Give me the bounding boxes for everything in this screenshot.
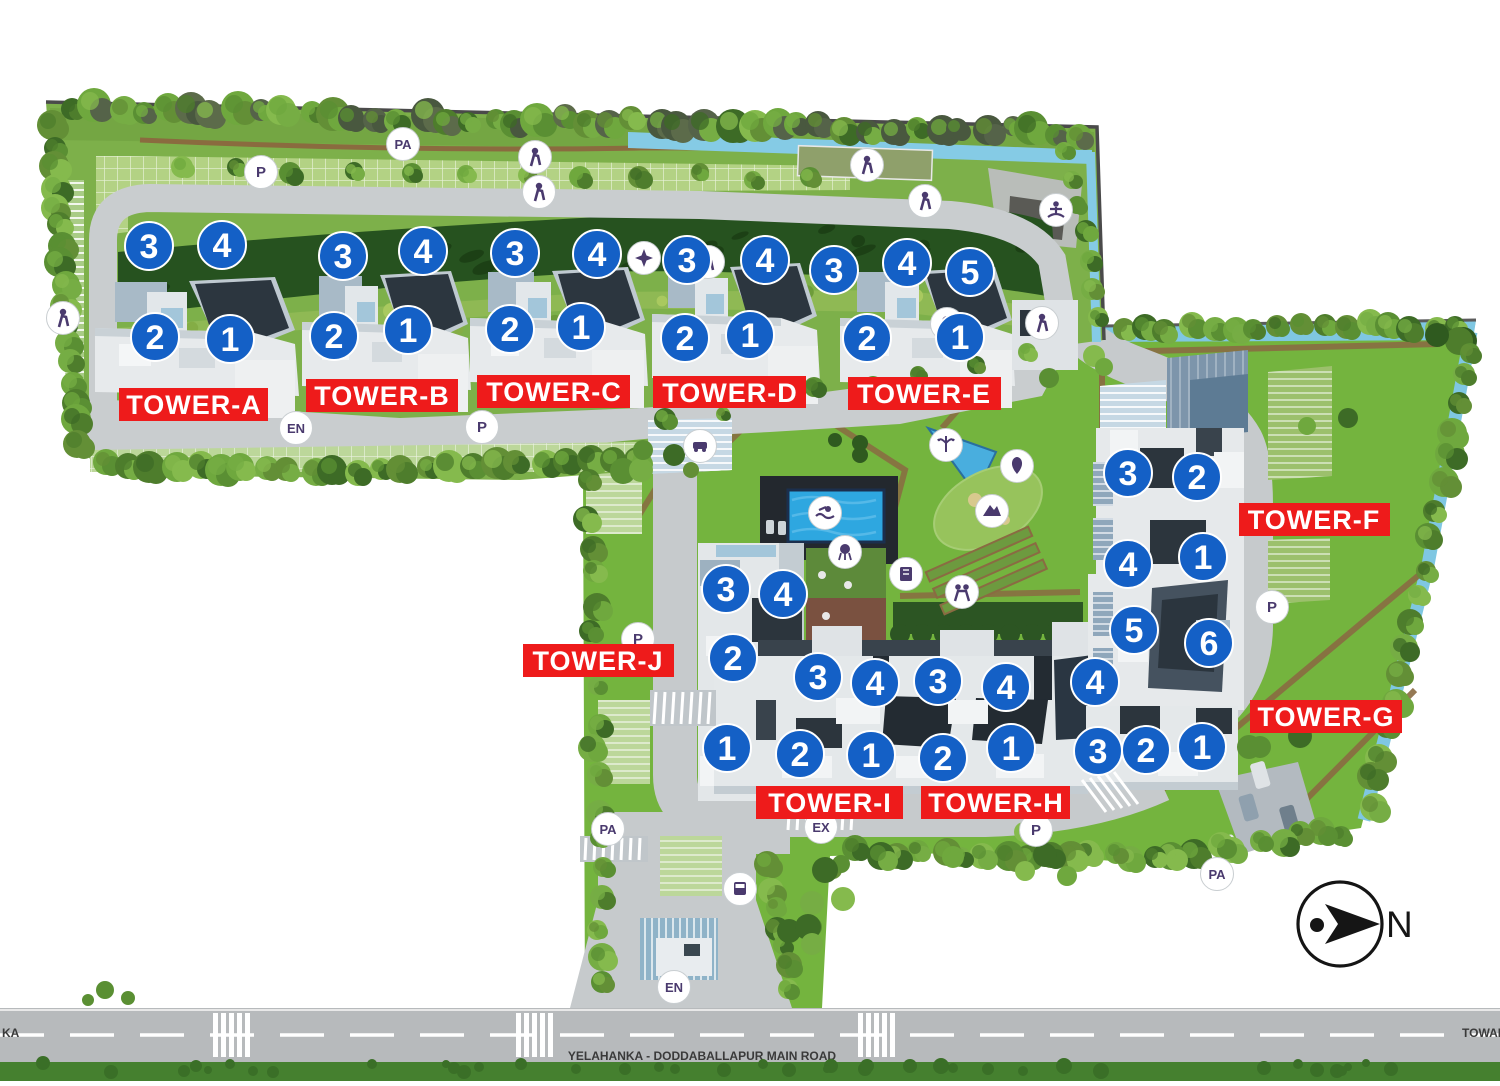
- svg-text:PA: PA: [394, 137, 412, 152]
- svg-text:PA: PA: [1208, 867, 1226, 882]
- svg-text:4: 4: [414, 233, 433, 271]
- svg-text:3: 3: [717, 571, 736, 609]
- svg-text:TOWER-F: TOWER-F: [1248, 505, 1380, 535]
- svg-text:1: 1: [862, 737, 881, 775]
- svg-text:6: 6: [1200, 625, 1219, 663]
- svg-text:2: 2: [325, 318, 344, 356]
- svg-text:3: 3: [929, 663, 948, 701]
- svg-text:TOWER-G: TOWER-G: [1258, 702, 1395, 732]
- svg-text:4: 4: [1119, 546, 1138, 584]
- svg-text:1: 1: [1002, 730, 1021, 768]
- svg-text:TOWER-C: TOWER-C: [486, 377, 622, 407]
- svg-text:TOWER-H: TOWER-H: [928, 788, 1064, 818]
- svg-text:TOWER-J: TOWER-J: [532, 646, 663, 676]
- svg-text:TOWER-I: TOWER-I: [768, 788, 892, 818]
- svg-text:P: P: [477, 419, 487, 436]
- svg-text:TOWER-B: TOWER-B: [314, 381, 450, 411]
- svg-text:EN: EN: [665, 980, 683, 995]
- svg-text:3: 3: [678, 242, 697, 280]
- svg-text:4: 4: [997, 669, 1016, 707]
- svg-text:3: 3: [140, 228, 159, 266]
- svg-text:3: 3: [1089, 733, 1108, 771]
- svg-text:2: 2: [1188, 459, 1207, 497]
- svg-text:2: 2: [146, 319, 165, 357]
- svg-text:1: 1: [572, 309, 591, 347]
- svg-text:1: 1: [221, 321, 240, 359]
- svg-text:4: 4: [898, 245, 917, 283]
- svg-text:4: 4: [756, 242, 775, 280]
- svg-text:2: 2: [724, 640, 743, 678]
- svg-text:1: 1: [1193, 729, 1212, 767]
- svg-text:1: 1: [741, 317, 760, 355]
- svg-text:EX: EX: [812, 820, 830, 835]
- svg-text:1: 1: [718, 730, 737, 768]
- svg-text:3: 3: [334, 238, 353, 276]
- svg-text:2: 2: [501, 311, 520, 349]
- svg-text:N: N: [1386, 904, 1413, 945]
- svg-text:3: 3: [809, 659, 828, 697]
- svg-text:4: 4: [866, 665, 885, 703]
- svg-text:1: 1: [399, 312, 418, 350]
- svg-text:2: 2: [934, 740, 953, 778]
- svg-text:2: 2: [676, 320, 695, 358]
- svg-text:3: 3: [825, 252, 844, 290]
- svg-text:2: 2: [858, 320, 877, 358]
- svg-text:5: 5: [961, 254, 980, 292]
- svg-text:1: 1: [1194, 539, 1213, 577]
- svg-text:4: 4: [588, 236, 607, 274]
- svg-text:P: P: [256, 164, 266, 181]
- svg-text:2: 2: [1137, 732, 1156, 770]
- svg-text:3: 3: [1119, 455, 1138, 493]
- svg-text:4: 4: [213, 227, 232, 265]
- svg-text:EN: EN: [287, 421, 305, 436]
- svg-text:5: 5: [1125, 612, 1144, 650]
- svg-text:TOWER-D: TOWER-D: [662, 378, 798, 408]
- svg-text:PA: PA: [599, 822, 617, 837]
- svg-text:KA: KA: [2, 1026, 20, 1040]
- svg-text:2: 2: [791, 736, 810, 774]
- svg-text:YELAHANKA - DODDABALLAPUR MAIN: YELAHANKA - DODDABALLAPUR MAIN ROAD: [568, 1049, 837, 1063]
- svg-text:4: 4: [1086, 664, 1105, 702]
- svg-text:3: 3: [506, 235, 525, 273]
- svg-text:TOWER-E: TOWER-E: [857, 379, 991, 409]
- svg-text:P: P: [1031, 822, 1041, 839]
- svg-text:1: 1: [951, 319, 970, 357]
- svg-text:TOWAR: TOWAR: [1462, 1026, 1500, 1040]
- svg-text:P: P: [1267, 599, 1277, 616]
- svg-text:4: 4: [774, 576, 793, 614]
- svg-text:TOWER-A: TOWER-A: [126, 390, 262, 420]
